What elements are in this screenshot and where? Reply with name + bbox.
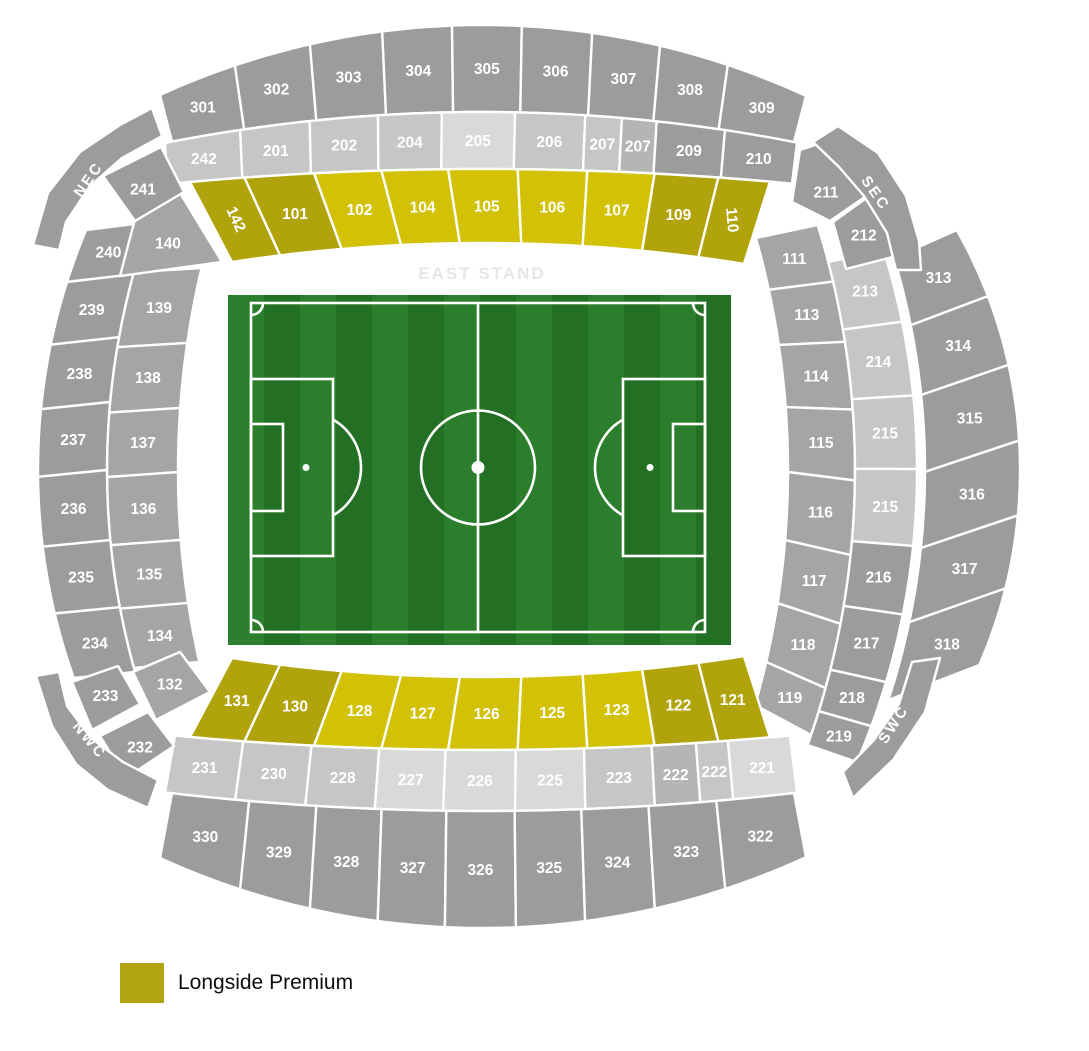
section-label: 121 [720, 692, 746, 709]
section-label: 304 [405, 63, 431, 80]
section-label: 205 [465, 133, 491, 150]
section-label: 329 [266, 844, 292, 861]
section-label: 218 [839, 690, 865, 707]
section-label: 233 [93, 688, 119, 705]
section-label: 237 [60, 432, 86, 449]
section-label: 323 [673, 844, 699, 861]
section-label: 217 [854, 636, 880, 653]
section-label: 306 [543, 64, 569, 81]
section-label: 206 [536, 134, 562, 151]
section-label: 132 [157, 677, 183, 694]
section-label: 212 [851, 227, 877, 244]
section-label: 107 [604, 203, 630, 220]
section-label: 139 [146, 300, 172, 317]
section-label: 140 [155, 236, 181, 253]
section-label: 137 [130, 435, 156, 452]
section-label: 303 [336, 70, 362, 87]
section-label: 135 [136, 567, 162, 584]
section-label: 118 [791, 637, 816, 654]
section-label: 128 [347, 703, 373, 720]
pitch [228, 295, 732, 645]
section-label: 102 [347, 202, 373, 219]
section-label: 327 [400, 860, 426, 877]
section-label: 136 [131, 501, 157, 518]
section-label: 301 [190, 100, 216, 117]
pitch-penalty-spot-left [303, 464, 310, 471]
section-label: 302 [263, 82, 289, 99]
section-label: 138 [135, 370, 161, 387]
section-label: 330 [192, 829, 218, 846]
section-label: 228 [330, 770, 356, 787]
section-label: 315 [957, 411, 983, 428]
section-label: 241 [130, 182, 156, 199]
section-label: 114 [804, 368, 829, 385]
section-label: 209 [676, 143, 702, 160]
section-label: 210 [746, 151, 772, 168]
section-label: 223 [606, 770, 632, 787]
section-label: 104 [410, 199, 436, 216]
section-label: 117 [802, 573, 827, 590]
section-label: 202 [331, 137, 357, 154]
section-label: 326 [468, 862, 494, 879]
section-label: 318 [934, 636, 960, 653]
section-label: 240 [96, 245, 122, 262]
section-label: 105 [474, 199, 500, 216]
section-label: 325 [536, 860, 562, 877]
section-label: 328 [333, 854, 359, 871]
section-label: 308 [677, 82, 703, 99]
section-label: 204 [397, 134, 423, 151]
legend-longside-premium-label: Longside Premium [178, 971, 353, 995]
section-label: 111 [782, 251, 807, 268]
section-label: 215 [872, 426, 898, 443]
section-label: 222 [663, 767, 689, 784]
section-label: 207 [625, 139, 651, 156]
section-label: 324 [604, 854, 630, 871]
section-label: 226 [467, 773, 493, 790]
section-label: 236 [61, 501, 87, 518]
section-label: 239 [79, 302, 105, 319]
section-label: 314 [945, 338, 971, 355]
section-label: 316 [959, 487, 985, 504]
section-label: 119 [777, 690, 802, 707]
section-label: 207 [589, 136, 615, 153]
section-label: 317 [952, 561, 978, 578]
section-label: 222 [701, 764, 727, 781]
section-label: 123 [604, 702, 630, 719]
stadium-map-svg: 3013023033043053063073083092422012022042… [0, 0, 1089, 1051]
stadium-seating-map: 3013023033043053063073083092422012022042… [0, 0, 1089, 1051]
legend: Longside Premium [120, 963, 353, 1003]
section-label: 231 [192, 760, 218, 777]
section-label: 242 [191, 151, 217, 168]
section-label: 238 [66, 366, 92, 383]
section-label: 113 [794, 307, 819, 324]
section-label: 131 [224, 693, 250, 710]
section-label: 232 [127, 740, 153, 757]
section-label: 313 [926, 270, 952, 287]
section-label: 215 [872, 499, 898, 516]
section-label: 122 [665, 698, 691, 715]
section-label: 305 [474, 61, 500, 78]
section-label: 126 [474, 706, 500, 723]
legend-longside-premium-swatch [120, 963, 164, 1003]
section-label: 115 [809, 435, 834, 452]
pitch-penalty-spot-right [647, 464, 654, 471]
section-label: 227 [398, 772, 424, 789]
section-label: 225 [537, 772, 563, 789]
section-label: 214 [865, 354, 891, 371]
section-label: 101 [282, 206, 308, 223]
section-label: 213 [852, 283, 878, 300]
section-label: 201 [263, 143, 289, 160]
section-label: 322 [747, 828, 773, 845]
section-label: 309 [749, 100, 775, 117]
section-label: 216 [866, 569, 892, 586]
section-label: 219 [826, 729, 852, 746]
section-label: 110 [722, 207, 741, 233]
section-label: 127 [410, 705, 436, 722]
section-label: 134 [147, 628, 173, 645]
east-stand-label: EAST STAND [372, 264, 592, 284]
section-label: 116 [808, 504, 833, 521]
section-label: 125 [539, 705, 565, 722]
section-label: 235 [68, 569, 94, 586]
section-label: 109 [665, 207, 691, 224]
section-label: 307 [610, 71, 636, 88]
section-label: 221 [749, 760, 775, 777]
section-label: 230 [261, 766, 287, 783]
section-label: 130 [282, 699, 308, 716]
section-label: 106 [539, 200, 565, 217]
section-label: 234 [82, 635, 108, 652]
pitch-centre-spot [472, 461, 485, 474]
section-label: 211 [813, 185, 838, 202]
